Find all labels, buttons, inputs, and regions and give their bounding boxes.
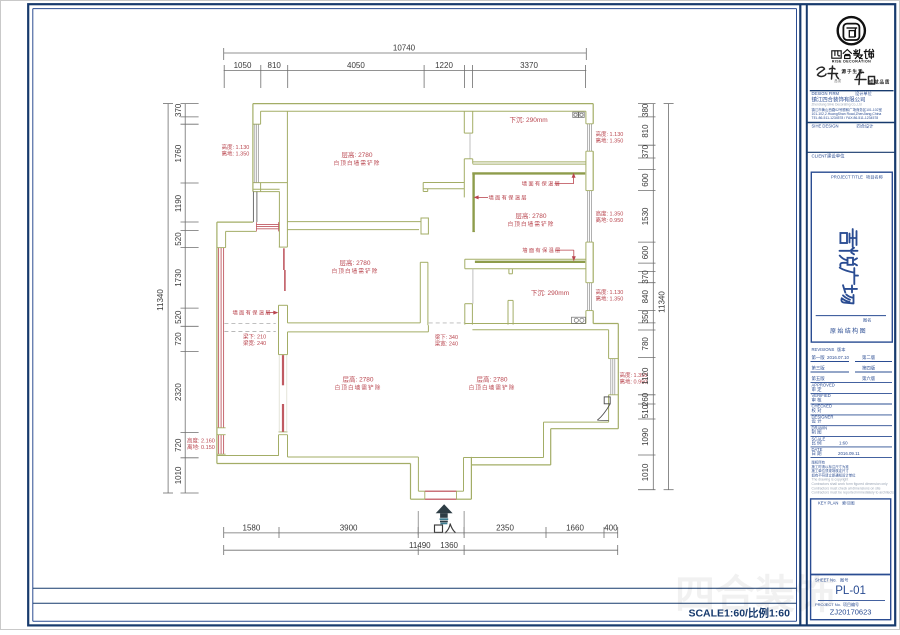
svg-text:梁宽: 240: 梁宽: 240 [243,339,266,347]
svg-text:10740: 10740 [393,44,416,53]
svg-text:源于生活: 源于生活 [842,68,864,75]
svg-text:11340: 11340 [156,289,165,311]
svg-text:600: 600 [641,173,650,187]
svg-text:第二版: 第二版 [862,354,876,361]
svg-text:2320: 2320 [174,383,183,401]
svg-text:520: 520 [174,310,183,324]
svg-text:3900: 3900 [340,523,358,532]
svg-text:520: 520 [174,232,183,246]
svg-text:离地: 1.350: 离地: 1.350 [596,295,624,303]
svg-text:370: 370 [641,270,650,284]
svg-text:制 图: 制 图 [812,429,823,436]
svg-text:层高: 2780: 层高: 2780 [341,150,372,159]
svg-text:1090: 1090 [641,428,650,446]
svg-text:2016.09.11: 2016.09.11 [838,451,860,456]
svg-text:DESIGN FIRM: DESIGN FIRM [812,91,840,96]
svg-text:1760: 1760 [174,144,183,162]
svg-text:白顶白墙需铲除: 白顶白墙需铲除 [332,267,379,275]
svg-text:高度: 1.350: 高度: 1.350 [596,210,624,218]
svg-text:施工时请以标注尺寸为准: 施工时请以标注尺寸为准 [812,464,850,469]
svg-text:下沉: 290mm: 下沉: 290mm [509,116,547,124]
svg-text:PL-01: PL-01 [835,585,866,597]
svg-text:RISE DECORATION: RISE DECORATION [832,60,871,64]
svg-text:离地: 0.150: 离地: 0.150 [187,443,215,451]
svg-text:2350: 2350 [496,523,514,532]
svg-text:高度: 1.130: 高度: 1.130 [596,288,624,296]
svg-text:项目名称: 项目名称 [866,174,883,181]
svg-text:1360: 1360 [440,541,458,550]
svg-text:第四版: 第四版 [862,364,876,371]
svg-text:400: 400 [604,523,618,532]
svg-text:白顶白墙需铲除: 白顶白墙需铲除 [334,159,381,167]
svg-text:1050: 1050 [234,61,252,70]
svg-text:索引图: 索引图 [842,499,855,506]
svg-text:REVISIONS: REVISIONS [812,347,835,352]
svg-text:810: 810 [268,61,282,70]
svg-text:1660: 1660 [566,523,584,532]
svg-text:下沉: 290mm: 下沉: 290mm [531,289,569,297]
svg-text:3370: 3370 [520,61,538,70]
svg-text:600: 600 [641,245,650,259]
svg-text:1220: 1220 [435,61,453,70]
svg-text:810: 810 [641,124,650,138]
svg-text:层高: 2780: 层高: 2780 [342,375,373,384]
svg-text:层高: 2780: 层高: 2780 [476,375,507,384]
svg-text:版权所有: 版权所有 [812,460,826,465]
svg-text:CLIENT: CLIENT [812,153,828,158]
svg-text:高度: 2.160: 高度: 2.160 [187,437,215,445]
svg-text:Contractors must be reported i: Contractors must be reported immediately… [812,491,895,495]
svg-text:SHEET No.: SHEET No. [815,577,837,582]
svg-text:1:60: 1:60 [839,441,848,446]
svg-text:四合设计: 四合设计 [857,123,874,130]
svg-text:高度: 1.130: 高度: 1.130 [222,143,250,151]
svg-text:白顶白墙需铲除: 白顶白墙需铲除 [335,383,382,391]
svg-text:PROJECT No.: PROJECT No. [815,602,841,607]
svg-text:11340: 11340 [658,291,667,313]
svg-text:设 计: 设 计 [812,418,823,425]
svg-text:TEL:86-511-1234578 / FAX:86-51: TEL:86-511-1234578 / FAX:86-511-1234578 [812,116,879,120]
svg-text:比 例: 比 例 [812,440,823,447]
svg-text:校 对: 校 对 [812,407,823,414]
svg-text:1010: 1010 [174,466,183,484]
svg-text:梁宽: 240: 梁宽: 240 [435,340,458,348]
svg-text:ZhenJiang SiHe Decorating Co.,: ZhenJiang SiHe Decorating Co.,Ltd [812,103,862,107]
svg-text:SCALE1:60/比例1:60: SCALE1:60/比例1:60 [688,607,790,620]
svg-text:1530: 1530 [641,207,650,225]
svg-text:梁下: 210: 梁下: 210 [243,333,266,341]
svg-text:11490: 11490 [409,541,431,550]
svg-text:如有不符请立即通知设计单位: 如有不符请立即通知设计单位 [812,472,857,477]
svg-text:1730: 1730 [174,268,183,286]
svg-text:370: 370 [641,144,650,158]
svg-text:墙面有保温层: 墙面有保温层 [233,309,272,317]
svg-text:1580: 1580 [243,523,261,532]
svg-text:施工单位须现场核定尺寸: 施工单位须现场核定尺寸 [812,468,850,473]
svg-text:高度: 1.130: 高度: 1.130 [596,130,624,138]
svg-text:审 定: 审 定 [812,386,823,393]
svg-text:780: 780 [641,337,650,351]
svg-text:原始结构图: 原始结构图 [830,327,867,335]
svg-text:墙面有保温层: 墙面有保温层 [489,194,528,202]
svg-text:图名: 图名 [863,317,871,324]
svg-text:白顶白墙需铲除: 白顶白墙需铲除 [508,220,555,228]
svg-text:离地: 1.350: 离地: 1.350 [596,137,624,145]
svg-text:ZJ20170623: ZJ20170623 [830,608,872,617]
svg-text:2016.07.10: 2016.07.10 [827,355,850,360]
svg-text:510: 510 [641,404,650,418]
svg-text:1190: 1190 [174,194,183,212]
svg-text:第一版: 第一版 [812,354,826,361]
svg-text:370: 370 [174,103,183,117]
svg-text:350: 350 [641,310,650,324]
svg-text:品质: 品质 [834,78,842,83]
svg-text:离地: 1.350: 离地: 1.350 [222,150,250,158]
svg-text:离地: 0.950: 离地: 0.950 [596,216,624,224]
svg-text:建设单位: 建设单位 [827,152,845,159]
svg-text:白顶白墙需铲除: 白顶白墙需铲除 [469,383,516,391]
svg-text:项目编号: 项目编号 [843,601,859,607]
svg-text:840: 840 [641,289,650,303]
svg-text:层高: 2780: 层高: 2780 [339,258,370,267]
svg-text:第六版: 第六版 [862,375,876,382]
svg-text:梁下: 340: 梁下: 340 [435,333,458,341]
svg-text:4050: 4050 [347,61,365,70]
svg-text:第三版: 第三版 [812,364,826,371]
svg-text:720: 720 [174,332,183,346]
svg-text:1120: 1120 [641,367,650,385]
svg-text:PROJECT TITLE: PROJECT TITLE [831,175,863,180]
svg-text:层高: 2780: 层高: 2780 [515,211,546,220]
svg-text:成就品质: 成就品质 [869,79,891,86]
svg-text:260: 260 [641,392,650,406]
svg-text:380: 380 [641,103,650,117]
svg-text:设计单位: 设计单位 [855,90,872,97]
svg-text:720: 720 [174,438,183,452]
svg-text:KEY PLAN: KEY PLAN [818,500,838,505]
svg-text:版本: 版本 [837,346,846,353]
svg-text:SIHE DESIGN: SIHE DESIGN [812,124,839,129]
svg-text:第五版: 第五版 [812,375,826,382]
svg-text:1010: 1010 [641,463,650,481]
